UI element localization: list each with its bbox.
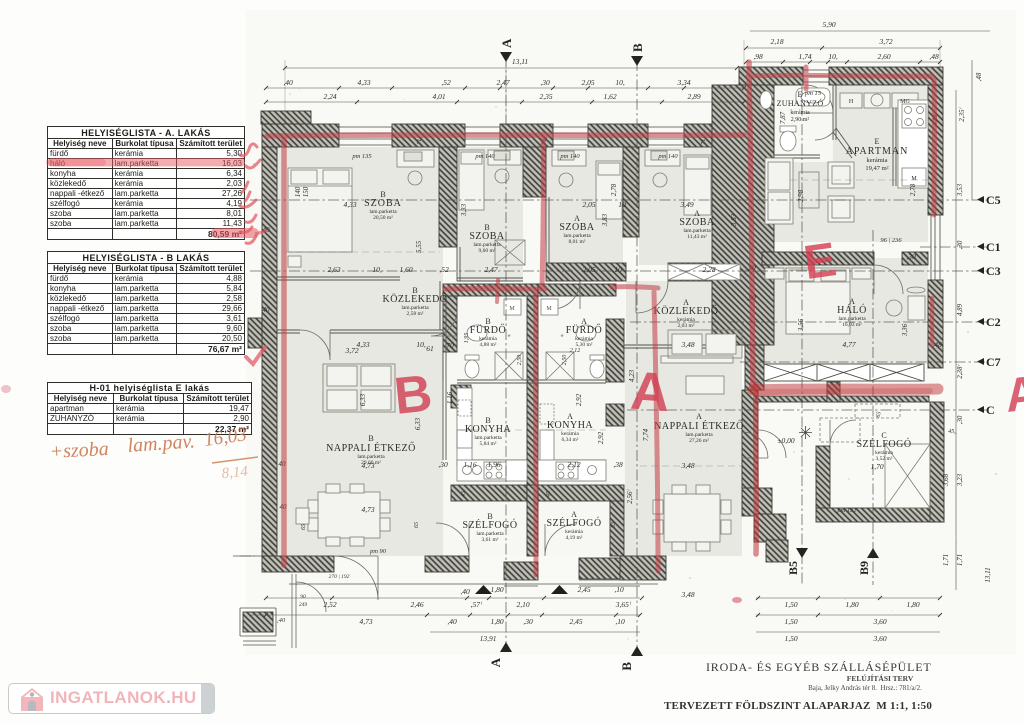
svg-text:3,53: 3,53 bbox=[956, 183, 964, 197]
svg-text:13,11: 13,11 bbox=[512, 57, 528, 66]
svg-text:2,12: 2,12 bbox=[570, 348, 581, 354]
svg-text:10,: 10, bbox=[828, 52, 838, 61]
svg-text:4,19 m²: 4,19 m² bbox=[566, 535, 583, 541]
svg-text:,48: ,48 bbox=[975, 72, 983, 81]
svg-text:A: A bbox=[696, 412, 702, 421]
svg-text:5,90: 5,90 bbox=[822, 20, 835, 29]
svg-text:3,65ⁱ: 3,65ⁱ bbox=[615, 600, 632, 609]
svg-text:2,05: 2,05 bbox=[581, 78, 594, 87]
svg-text:H: H bbox=[849, 99, 854, 105]
svg-text:1,62: 1,62 bbox=[603, 92, 616, 101]
svg-text:1,70: 1,70 bbox=[870, 462, 883, 471]
svg-text:SZÉLFOGÓ: SZÉLFOGÓ bbox=[856, 438, 911, 450]
svg-text:2,10: 2,10 bbox=[516, 600, 529, 609]
svg-text:A: A bbox=[488, 657, 503, 667]
svg-text:10: 10 bbox=[618, 200, 626, 209]
svg-text:2,63: 2,63 bbox=[327, 265, 340, 274]
svg-text:KÖZLEKEDŐ: KÖZLEKEDŐ bbox=[653, 305, 718, 317]
svg-text:4,33: 4,33 bbox=[343, 200, 356, 209]
svg-text:65: 65 bbox=[414, 522, 420, 528]
svg-text:2,03 m²: 2,03 m² bbox=[678, 323, 695, 329]
svg-text:2,98: 2,98 bbox=[797, 189, 805, 202]
svg-text:C: C bbox=[986, 403, 995, 417]
svg-text:2,35ⁱ: 2,35ⁱ bbox=[958, 107, 966, 122]
svg-text:,30: ,30 bbox=[956, 240, 964, 249]
svg-text:B: B bbox=[630, 43, 645, 52]
svg-text:3,68: 3,68 bbox=[942, 473, 950, 487]
svg-text:1,80: 1,80 bbox=[490, 617, 503, 626]
svg-text:45: 45 bbox=[545, 491, 552, 497]
svg-text:3,72: 3,72 bbox=[344, 346, 358, 355]
svg-text:1,71: 1,71 bbox=[942, 554, 950, 566]
svg-text:B: B bbox=[368, 434, 373, 443]
svg-text:13,91: 13,91 bbox=[480, 634, 497, 643]
svg-text:2,05: 2,05 bbox=[582, 265, 595, 274]
svg-text:4,33: 4,33 bbox=[357, 78, 370, 87]
svg-text:SZÉLFOGÓ: SZÉLFOGÓ bbox=[462, 519, 517, 531]
svg-text:,52: ,52 bbox=[441, 78, 451, 87]
svg-text:1,60: 1,60 bbox=[399, 265, 412, 274]
svg-text:2,89: 2,89 bbox=[687, 92, 700, 101]
svg-text:*: * bbox=[507, 333, 510, 342]
svg-text:249: 249 bbox=[299, 601, 308, 608]
svg-text:,52: ,52 bbox=[439, 265, 449, 274]
svg-text:20,50 m²: 20,50 m² bbox=[373, 215, 393, 221]
svg-text:2,47: 2,47 bbox=[496, 78, 509, 87]
svg-text:2,24: 2,24 bbox=[323, 92, 336, 101]
svg-text:FÜRDŐ: FÜRDŐ bbox=[470, 324, 506, 336]
svg-text:11,43 m²: 11,43 m² bbox=[687, 234, 707, 240]
svg-text:KONYHA: KONYHA bbox=[465, 424, 512, 435]
svg-text:1,80: 1,80 bbox=[845, 600, 858, 609]
svg-text:5,84 m²: 5,84 m² bbox=[480, 441, 497, 447]
svg-text:1,16: 1,16 bbox=[463, 460, 476, 469]
svg-text:1,16: 1,16 bbox=[446, 391, 454, 404]
svg-text:4,77: 4,77 bbox=[842, 340, 855, 349]
svg-text:8,01 m²: 8,01 m² bbox=[569, 239, 586, 245]
svg-text:6,34 m²: 6,34 m² bbox=[562, 437, 579, 443]
svg-text:KÖZLEKEDŐ: KÖZLEKEDŐ bbox=[382, 293, 447, 305]
svg-text:,30: ,30 bbox=[956, 415, 964, 424]
svg-text:2,90 m²: 2,90 m² bbox=[791, 117, 810, 123]
svg-text:,30: ,30 bbox=[438, 460, 448, 469]
svg-text:2,47: 2,47 bbox=[484, 265, 497, 274]
svg-text:C2: C2 bbox=[986, 315, 1001, 329]
svg-text:71,: 71, bbox=[701, 137, 707, 145]
svg-text:4,01: 4,01 bbox=[432, 92, 445, 101]
svg-text:pm 135: pm 135 bbox=[351, 153, 372, 160]
svg-text:pm 90: pm 90 bbox=[369, 548, 387, 555]
svg-text:1,96: 1,96 bbox=[487, 460, 500, 469]
svg-text:40: 40 bbox=[263, 306, 271, 314]
svg-text:3,83: 3,83 bbox=[730, 213, 738, 227]
svg-text:2,45: 2,45 bbox=[577, 585, 590, 594]
svg-text:2,56ⁱ: 2,56ⁱ bbox=[626, 489, 634, 504]
svg-text:40: 40 bbox=[263, 226, 271, 234]
svg-text:45,: 45, bbox=[948, 428, 956, 435]
svg-text:1,71: 1,71 bbox=[956, 554, 964, 566]
svg-text:3,36: 3,36 bbox=[901, 323, 909, 337]
svg-text:2,78: 2,78 bbox=[610, 183, 618, 196]
svg-text:M: M bbox=[546, 306, 552, 312]
svg-text:*: * bbox=[560, 333, 563, 342]
svg-text:2,05: 2,05 bbox=[582, 200, 595, 209]
svg-text:,30: ,30 bbox=[540, 78, 550, 87]
svg-text:HÁLÓ: HÁLÓ bbox=[837, 304, 867, 316]
svg-text:B5: B5 bbox=[786, 561, 800, 575]
svg-text:KONYHA: KONYHA bbox=[547, 420, 594, 431]
svg-text:1,50: 1,50 bbox=[784, 600, 797, 609]
svg-text:16,03 m²: 16,03 m² bbox=[842, 322, 862, 328]
svg-text:4,89: 4,89 bbox=[956, 303, 964, 316]
svg-text:SZOBA: SZOBA bbox=[559, 222, 595, 233]
svg-text:10,: 10, bbox=[615, 78, 625, 87]
svg-text:APARTMAN: APARTMAN bbox=[846, 146, 909, 157]
svg-text:2,78: 2,78 bbox=[909, 183, 917, 196]
svg-text:6,33: 6,33 bbox=[359, 393, 367, 406]
svg-text:,38: ,38 bbox=[613, 460, 623, 469]
svg-text:B: B bbox=[619, 662, 634, 671]
svg-text:19,47 m²: 19,47 m² bbox=[865, 165, 888, 172]
svg-text:29,66 m²: 29,66 m² bbox=[361, 460, 381, 466]
svg-text:2,35: 2,35 bbox=[539, 92, 552, 101]
svg-text:3,23: 3,23 bbox=[956, 473, 964, 487]
svg-text:SZOBA: SZOBA bbox=[469, 231, 505, 242]
svg-text:pm 140: pm 140 bbox=[474, 153, 495, 160]
svg-text:150: 150 bbox=[302, 186, 310, 197]
svg-text:3,48: 3,48 bbox=[680, 590, 694, 599]
svg-text:4,88 m²: 4,88 m² bbox=[480, 342, 497, 348]
svg-text:,98: ,98 bbox=[753, 52, 763, 61]
svg-text:E: E bbox=[798, 90, 803, 99]
svg-text:96 | 236: 96 | 236 bbox=[880, 237, 902, 244]
svg-text:2,50: 2,50 bbox=[517, 355, 523, 366]
svg-text:2,92: 2,92 bbox=[597, 431, 605, 444]
svg-text:E: E bbox=[875, 137, 880, 146]
svg-text:3,48: 3,48 bbox=[680, 461, 694, 470]
svg-text:140: 140 bbox=[294, 186, 302, 197]
svg-text:1,80: 1,80 bbox=[906, 600, 919, 609]
svg-text:2,45: 2,45 bbox=[569, 617, 582, 626]
svg-text:M: M bbox=[911, 176, 917, 182]
svg-text:2,12: 2,12 bbox=[567, 460, 580, 469]
svg-text:270 | 192: 270 | 192 bbox=[329, 574, 350, 580]
svg-text:3,61 m²: 3,61 m² bbox=[482, 537, 499, 543]
svg-text:10,: 10, bbox=[372, 265, 382, 274]
svg-text:,40: ,40 bbox=[447, 617, 457, 626]
svg-text:5,55: 5,55 bbox=[415, 240, 423, 253]
svg-text:SZÉLFOGÓ: SZÉLFOGÓ bbox=[546, 517, 601, 529]
svg-text:A: A bbox=[499, 38, 514, 48]
svg-text:,30: ,30 bbox=[906, 252, 916, 261]
svg-text:90: 90 bbox=[300, 594, 306, 600]
svg-text:kerámia: kerámia bbox=[867, 157, 888, 164]
svg-text:A: A bbox=[629, 361, 672, 424]
svg-text:3,56: 3,56 bbox=[797, 318, 805, 332]
svg-text:3,48: 3,48 bbox=[680, 340, 694, 349]
svg-text:pm 131: pm 131 bbox=[836, 507, 856, 514]
svg-text:MG: MG bbox=[900, 99, 910, 105]
svg-text:,10: ,10 bbox=[612, 265, 622, 274]
svg-text:,48: ,48 bbox=[929, 52, 939, 61]
svg-text:B: B bbox=[391, 364, 434, 426]
svg-text:,40: ,40 bbox=[460, 587, 470, 596]
svg-text:C3: C3 bbox=[986, 264, 1001, 278]
svg-text:13,11: 13,11 bbox=[984, 567, 992, 582]
svg-text:NAPPALI ÉTKEZŐ: NAPPALI ÉTKEZŐ bbox=[326, 442, 416, 454]
svg-text:SZOBA: SZOBA bbox=[679, 217, 715, 228]
svg-text:45: 45 bbox=[460, 491, 467, 497]
svg-text:1,50: 1,50 bbox=[784, 634, 797, 643]
svg-text:C1: C1 bbox=[986, 240, 1001, 254]
svg-text:,10: ,10 bbox=[614, 585, 624, 594]
svg-text:±0,00: ±0,00 bbox=[777, 436, 794, 445]
svg-text:3,34: 3,34 bbox=[676, 78, 690, 87]
svg-text:71,: 71, bbox=[417, 137, 423, 145]
svg-text:2,92: 2,92 bbox=[575, 393, 583, 406]
svg-text:3,83: 3,83 bbox=[601, 213, 609, 227]
svg-text:61: 61 bbox=[426, 344, 434, 353]
svg-text:,30: ,30 bbox=[523, 617, 533, 626]
svg-text:2,18: 2,18 bbox=[770, 37, 783, 46]
svg-text:1,80: 1,80 bbox=[490, 585, 503, 594]
svg-text:FÜRDŐ: FÜRDŐ bbox=[566, 324, 602, 336]
svg-text:9,60 m²: 9,60 m² bbox=[479, 248, 496, 254]
svg-text:2,46: 2,46 bbox=[410, 600, 423, 609]
svg-text:1,74: 1,74 bbox=[798, 52, 811, 61]
svg-text:,57ⁱ: ,57ⁱ bbox=[471, 600, 483, 609]
svg-text:,40: ,40 bbox=[277, 617, 286, 624]
svg-text:1,50: 1,50 bbox=[784, 617, 797, 626]
svg-text:3,33: 3,33 bbox=[460, 203, 468, 217]
svg-text:3,60: 3,60 bbox=[872, 617, 886, 626]
svg-text:7,74: 7,74 bbox=[642, 428, 650, 441]
svg-text:70: 70 bbox=[446, 341, 454, 350]
svg-text:3,72: 3,72 bbox=[878, 37, 892, 46]
svg-text:SZOBA: SZOBA bbox=[364, 198, 402, 209]
svg-text:2,50: 2,50 bbox=[562, 355, 568, 366]
svg-text:2,60: 2,60 bbox=[877, 52, 890, 61]
svg-text:10,: 10, bbox=[416, 340, 426, 349]
svg-text:2,28: 2,28 bbox=[702, 265, 715, 274]
svg-text:M: M bbox=[509, 306, 515, 312]
svg-text:C5: C5 bbox=[986, 193, 1001, 207]
svg-text:2,58 m²: 2,58 m² bbox=[407, 311, 424, 317]
svg-text:3,49: 3,49 bbox=[679, 200, 693, 209]
svg-text:pm 140: pm 140 bbox=[657, 153, 678, 160]
svg-text:2,38ⁱ: 2,38ⁱ bbox=[956, 364, 964, 379]
svg-text:3,60: 3,60 bbox=[872, 634, 886, 643]
svg-text:,40: ,40 bbox=[283, 78, 293, 87]
svg-text:pm 140: pm 140 bbox=[559, 153, 580, 160]
svg-text:7,87: 7,87 bbox=[779, 111, 787, 124]
svg-text:27,26 m²: 27,26 m² bbox=[689, 438, 709, 444]
svg-text:4,73: 4,73 bbox=[359, 617, 372, 626]
svg-text:4,73: 4,73 bbox=[361, 505, 374, 514]
svg-text:C7: C7 bbox=[986, 355, 1001, 369]
svg-text:53: 53 bbox=[611, 522, 617, 528]
svg-text:,10: ,10 bbox=[615, 617, 625, 626]
svg-text:3,52 m²: 3,52 m² bbox=[876, 456, 893, 462]
svg-text:ZUHANYZÓ: ZUHANYZÓ bbox=[777, 98, 824, 108]
svg-text:B9: B9 bbox=[857, 561, 871, 575]
svg-text:65: 65 bbox=[301, 524, 307, 530]
svg-text:5,30 m²: 5,30 m² bbox=[576, 342, 593, 348]
svg-text:kerámia: kerámia bbox=[790, 110, 810, 116]
svg-text:2,52: 2,52 bbox=[323, 600, 336, 609]
